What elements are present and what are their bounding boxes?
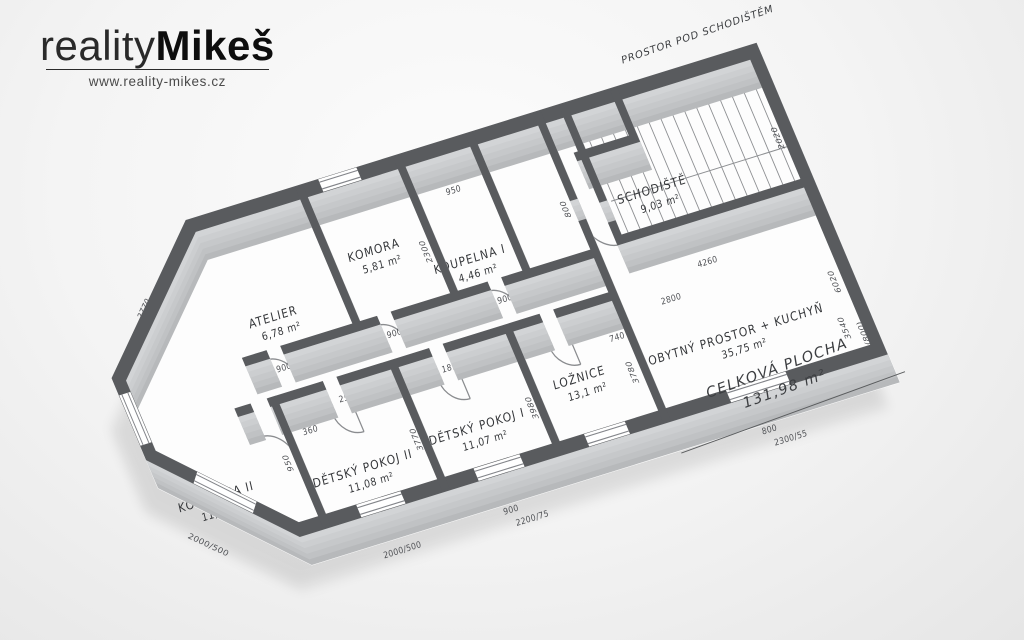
floor-plan-page: { "brand": { "logo_light": "reality", "l…	[0, 0, 1024, 640]
floorplan-drawing: KOUPELNA II 11,73 m² DĚTSKÝ POKOJ II 11,…	[0, 0, 1024, 640]
